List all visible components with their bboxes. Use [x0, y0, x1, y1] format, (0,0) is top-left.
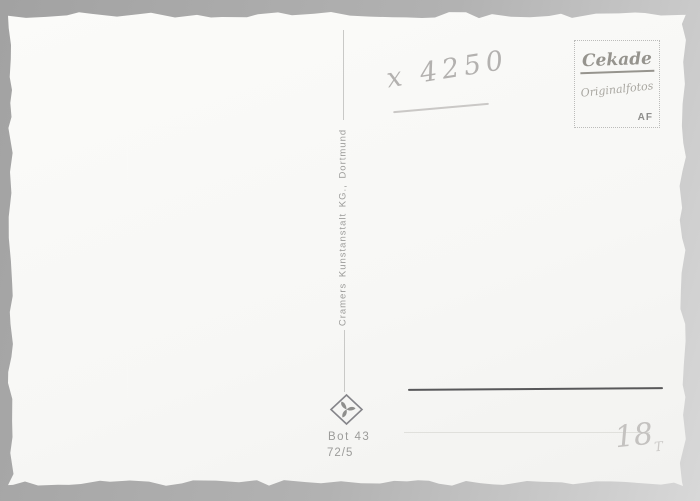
pencil-mark-main: 18	[613, 417, 655, 456]
pencil-mark-sub: T	[654, 440, 664, 456]
publisher-divider-bottom	[344, 330, 345, 392]
publisher-name: Cramers Kunstanstalt KG., Dortmund	[338, 123, 351, 333]
stamp-box: Cekade Originalfotos AF	[574, 40, 660, 128]
stamp-brand-row: Cekade	[575, 49, 660, 75]
publisher-diamond-icon	[328, 393, 365, 426]
address-line-faint	[404, 432, 650, 433]
handwritten-number: x 4250	[384, 45, 510, 95]
scan-background: x 4250 Cekade Originalfotos AF Cramers K…	[0, 0, 700, 501]
print-code-primary: Bot 43	[328, 431, 370, 443]
postcard: x 4250 Cekade Originalfotos AF Cramers K…	[8, 12, 686, 486]
publisher-divider-top	[343, 30, 344, 120]
address-line	[408, 387, 663, 391]
print-code-series: 72/5	[327, 447, 353, 459]
stamp-initials: AF	[638, 112, 653, 123]
handwritten-underline-stroke	[393, 103, 489, 113]
stamp-subtitle: Originalfotos	[575, 79, 660, 101]
pencil-mark: 18T	[613, 416, 664, 460]
stamp-brand-logo: Cekade	[580, 49, 655, 75]
